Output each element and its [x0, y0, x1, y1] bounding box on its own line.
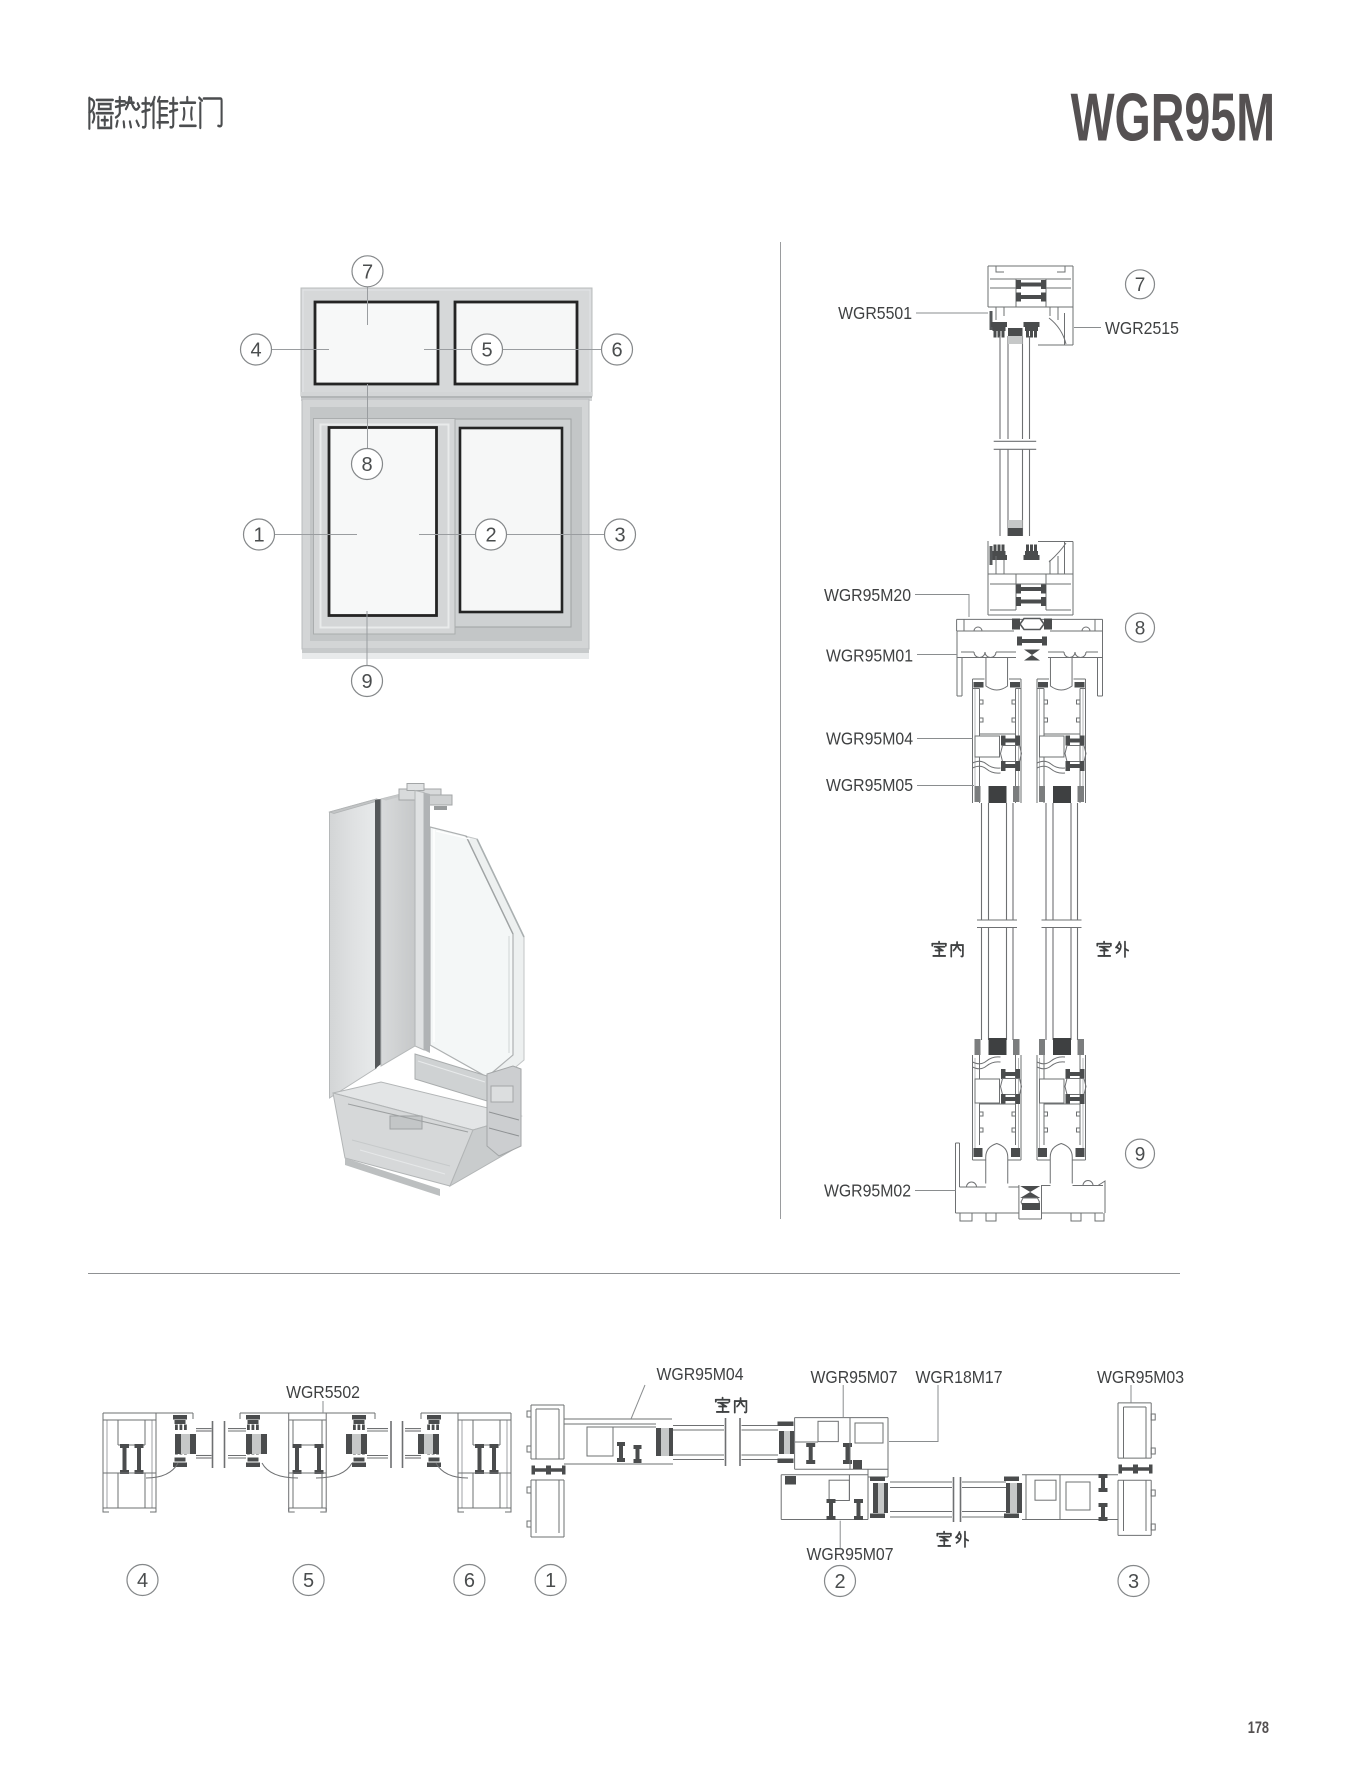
svg-text:WGR95M07: WGR95M07: [810, 1367, 897, 1387]
svg-text:7: 7: [1135, 275, 1146, 296]
svg-text:178: 178: [1248, 1718, 1269, 1737]
svg-text:2: 2: [834, 1571, 845, 1593]
svg-text:8: 8: [1135, 618, 1146, 639]
svg-text:5: 5: [303, 1570, 314, 1592]
svg-text:5: 5: [481, 340, 492, 362]
svg-text:3: 3: [1128, 1571, 1139, 1593]
svg-text:4: 4: [137, 1570, 148, 1592]
svg-text:WGR18M17: WGR18M17: [915, 1367, 1002, 1387]
svg-text:1: 1: [545, 1570, 556, 1592]
svg-text:9: 9: [361, 671, 372, 693]
svg-text:4: 4: [250, 340, 261, 362]
svg-text:3: 3: [614, 525, 625, 547]
svg-text:WGR95M20: WGR95M20: [824, 585, 911, 605]
svg-text:WGR95M03: WGR95M03: [1097, 1367, 1184, 1387]
svg-text:7: 7: [362, 261, 373, 283]
svg-text:WGR5501: WGR5501: [838, 303, 912, 323]
svg-text:6: 6: [611, 340, 622, 362]
svg-text:WGR95M01: WGR95M01: [826, 646, 913, 666]
svg-text:WGR95M07: WGR95M07: [806, 1544, 893, 1564]
svg-text:6: 6: [464, 1570, 475, 1592]
svg-text:WGR5502: WGR5502: [286, 1382, 360, 1402]
svg-text:1: 1: [253, 525, 264, 547]
svg-text:9: 9: [1135, 1144, 1146, 1165]
svg-text:WGR95M04: WGR95M04: [826, 729, 913, 749]
svg-text:2: 2: [485, 525, 496, 547]
svg-text:WGR2515: WGR2515: [1105, 318, 1179, 338]
svg-text:WGR95M04: WGR95M04: [656, 1364, 743, 1384]
svg-text:WGR95M02: WGR95M02: [824, 1181, 911, 1201]
svg-text:8: 8: [361, 454, 372, 476]
svg-text:WGR95M05: WGR95M05: [826, 775, 913, 795]
svg-text:WGR95M: WGR95M: [1071, 80, 1275, 156]
